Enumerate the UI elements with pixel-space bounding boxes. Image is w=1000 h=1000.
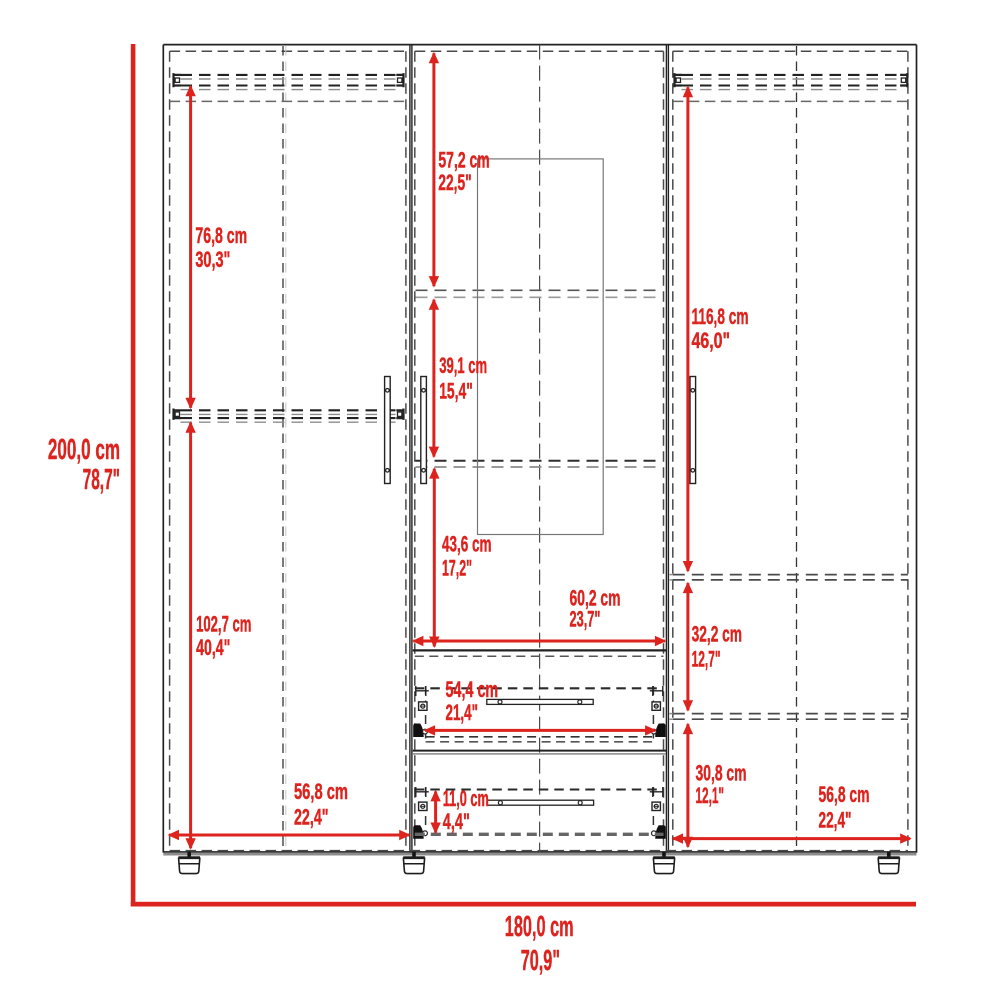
svg-text:22,4": 22,4"	[294, 805, 329, 830]
svg-text:4,4": 4,4"	[443, 809, 470, 834]
svg-text:116,8 cm: 116,8 cm	[692, 304, 749, 329]
svg-text:30,8 cm: 30,8 cm	[696, 761, 747, 786]
svg-text:200,0 cm: 200,0 cm	[48, 434, 120, 466]
svg-text:12,7": 12,7"	[692, 647, 721, 672]
svg-text:22,4": 22,4"	[819, 808, 852, 833]
svg-text:76,8 cm: 76,8 cm	[195, 223, 247, 248]
svg-text:21,4": 21,4"	[446, 700, 479, 725]
svg-text:11,0 cm: 11,0 cm	[443, 786, 489, 811]
svg-text:56,8 cm: 56,8 cm	[819, 782, 870, 807]
svg-text:56,8 cm: 56,8 cm	[294, 779, 348, 804]
svg-text:32,2 cm: 32,2 cm	[692, 622, 742, 647]
svg-text:43,6 cm: 43,6 cm	[442, 532, 492, 557]
svg-text:15,4": 15,4"	[439, 379, 473, 404]
svg-text:102,7 cm: 102,7 cm	[196, 612, 251, 637]
svg-text:22,5": 22,5"	[438, 170, 471, 195]
svg-text:78,7": 78,7"	[83, 464, 120, 496]
svg-text:39,1 cm: 39,1 cm	[439, 353, 487, 378]
svg-text:40,4": 40,4"	[196, 635, 230, 660]
svg-text:17,2": 17,2"	[442, 556, 472, 581]
svg-text:180,0 cm: 180,0 cm	[505, 911, 574, 943]
svg-text:70,9": 70,9"	[521, 945, 560, 977]
svg-text:12,1": 12,1"	[696, 783, 725, 808]
svg-text:30,3": 30,3"	[195, 247, 230, 272]
svg-text:54,4 cm: 54,4 cm	[446, 677, 499, 702]
svg-text:23,7": 23,7"	[570, 607, 601, 632]
svg-text:46,0": 46,0"	[692, 328, 731, 353]
